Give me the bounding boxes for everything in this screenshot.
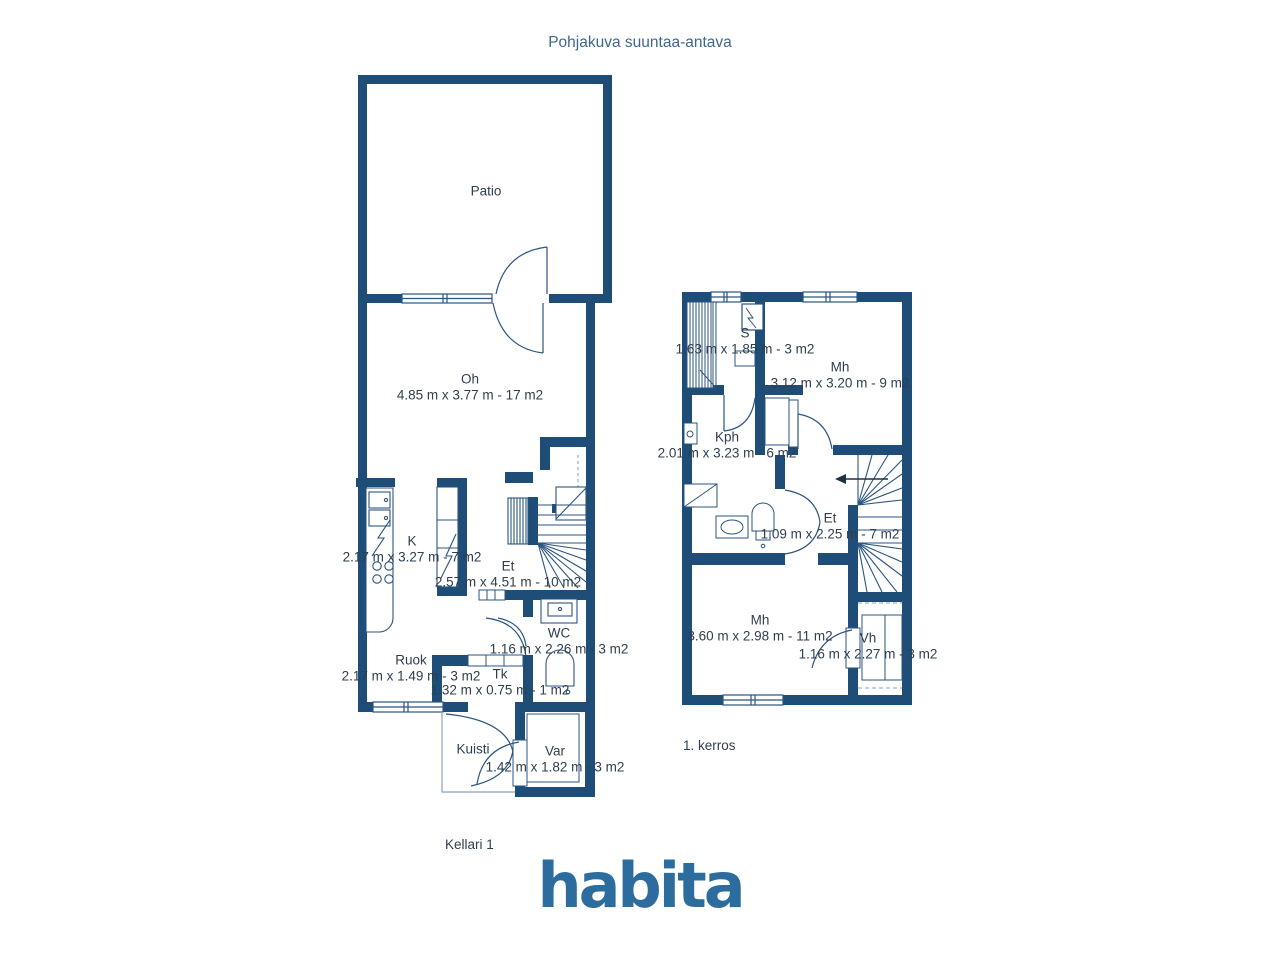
room-name: Kuisti	[456, 741, 489, 757]
room-name: S	[676, 326, 815, 342]
window-ruok	[373, 702, 443, 712]
room-label-et-kerros1: Et 1.09 m x 2.25 m - 7 m2	[761, 511, 900, 542]
room-dims: 4.85 m x 3.77 m - 17 m2	[397, 387, 543, 403]
room-label-s: S 1.63 m x 1.85 m - 3 m2	[676, 326, 815, 357]
room-dims: 2.57 m x 4.51 m - 10 m2	[435, 574, 581, 590]
floorplan-page: Pohjakuva suuntaa-antava	[0, 0, 1280, 960]
room-name: Kph	[658, 430, 797, 446]
room-name: Var	[486, 744, 625, 760]
room-dims: 1.16 m x 2.26 m - 3 m2	[490, 641, 629, 657]
room-name: Oh	[397, 372, 543, 388]
window-mh1	[803, 292, 857, 302]
window-mh2	[723, 695, 783, 705]
room-dims: 1.16 m x 2.27 m - 3 m2	[799, 646, 938, 662]
room-label-var: Var 1.42 m x 1.82 m - 3 m2	[486, 744, 625, 775]
room-label-kuisti: Kuisti	[456, 741, 489, 757]
room-dims: 2.01 m x 3.23 m - 6 m2	[658, 445, 797, 461]
room-label-kph: Kph 2.01 m x 3.23 m - 6 m2	[658, 430, 797, 461]
room-name: Mh	[687, 613, 832, 629]
room-label-oh: Oh 4.85 m x 3.77 m - 17 m2	[397, 372, 543, 403]
room-dims: 1.42 m x 1.82 m - 3 m2	[486, 759, 625, 775]
room-label-patio: Patio	[471, 183, 502, 199]
room-name: K	[343, 534, 482, 550]
room-label-mh1: Mh 3.12 m x 3.20 m - 9 m2	[771, 360, 910, 391]
room-name: Et	[761, 511, 900, 527]
room-name: Vh	[799, 631, 938, 647]
floorplan-drawing	[0, 0, 1280, 960]
room-label-et-kellari: Et 2.57 m x 4.51 m - 10 m2	[435, 559, 581, 590]
room-name: Et	[435, 559, 581, 575]
habita-logo: habita	[0, 849, 1280, 922]
room-label-vh: Vh 1.16 m x 2.27 m - 3 m2	[799, 631, 938, 662]
room-dims: 3.12 m x 3.20 m - 9 m2	[771, 375, 910, 391]
floor-caption-kerros1: 1. kerros	[683, 738, 736, 753]
room-name: Tk	[431, 667, 570, 683]
window-patio-oh	[402, 294, 492, 303]
window-sauna	[711, 292, 741, 302]
room-label-wc: WC 1.16 m x 2.26 m - 3 m2	[490, 626, 629, 657]
room-name: WC	[490, 626, 629, 642]
room-name: Patio	[471, 183, 502, 199]
room-name: Mh	[771, 360, 910, 376]
room-dims: 1.09 m x 2.25 m - 7 m2	[761, 526, 900, 542]
room-dims: 1.63 m x 1.85 m - 3 m2	[676, 341, 815, 357]
room-label-tk: Tk 1.32 m x 0.75 m - 1 m2	[431, 667, 570, 698]
room-dims: 1.32 m x 0.75 m - 1 m2	[431, 682, 570, 698]
